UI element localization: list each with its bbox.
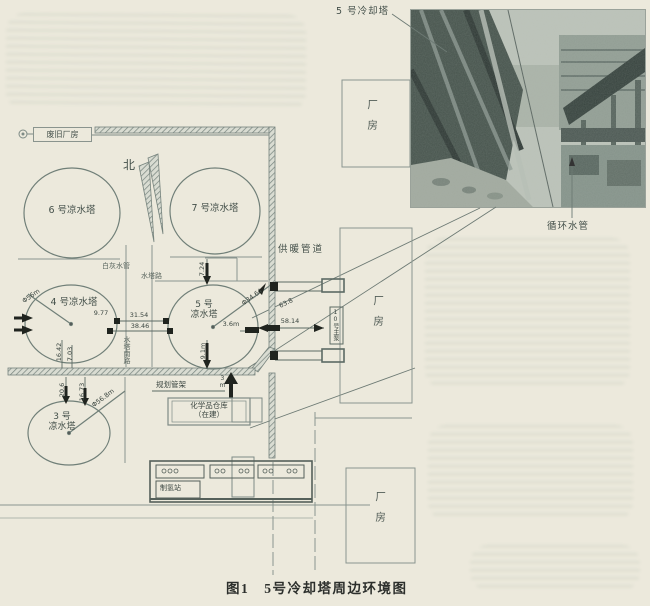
figure-page: 5 号冷却塔 循环水管 废旧厂房 北 6 号凉水塔 7 号凉水塔 4 号凉水塔 … xyxy=(0,0,650,606)
dim-7-24: 7.24 xyxy=(198,262,206,276)
tower-4-label: 4 号凉水塔 xyxy=(43,298,105,309)
dim-7-03: 7.03 xyxy=(66,347,74,361)
dim-58-14: 58.14 xyxy=(281,317,300,325)
tower-6-label: 6 号凉水塔 xyxy=(40,206,104,217)
pipe-node xyxy=(270,282,278,291)
factory-1-label: 厂房 xyxy=(366,99,378,159)
dim-20-6: 20.6 xyxy=(58,383,66,397)
chem-warehouse-label: 化学品仓库 （在建） xyxy=(170,402,248,419)
circ-pipe-arrowhead xyxy=(569,157,575,166)
shuita-road-label: 水塔路 xyxy=(141,272,162,280)
lime-pipe-label: 白灰水管 xyxy=(102,262,130,270)
tower-5-label-line1: 5 号 xyxy=(175,300,233,310)
supply-pipe-label: 供暖管道 xyxy=(278,245,324,256)
dim-31-54: 31.54 xyxy=(130,311,149,319)
circulating-pipe-label: 循环水管 xyxy=(547,222,589,233)
hydrogen-compound xyxy=(150,461,312,502)
dim-3-6m: 3.6m xyxy=(223,320,240,328)
tower-3-label-line1: 3 号 xyxy=(32,412,92,422)
dim-16-42: 16.42 xyxy=(55,343,63,362)
tower-3-label: 3 号 凉水塔 xyxy=(32,412,92,433)
dim-9-1m: 9.1m xyxy=(199,343,207,360)
factory-2-label: 厂房 xyxy=(372,295,384,355)
tower-5-label: 5 号 凉水塔 xyxy=(175,300,233,321)
dim-38-46: 38.46 xyxy=(131,322,150,330)
chem-warehouse-line2: （在建） xyxy=(170,411,248,420)
equipment-circles xyxy=(162,469,297,473)
old-factory-label: 废旧厂房 xyxy=(33,127,92,142)
annex-box xyxy=(232,457,254,497)
hydrogen-station-label: 制氢站 xyxy=(160,484,181,492)
north-arrow-icon xyxy=(139,154,163,242)
pipe-rack-width-label: 3m xyxy=(218,375,225,390)
shuita-south-road-label: 水塔南路 xyxy=(123,336,131,376)
figure-caption: 图1 5号冷却塔周边环境图 xyxy=(226,577,408,597)
factory-3-label: 厂房 xyxy=(374,491,386,551)
dim-16-73: 16.73 xyxy=(78,383,86,402)
pipe-rack-label: 规划管架 xyxy=(156,381,186,390)
north-label: 北 xyxy=(123,159,135,173)
tower-3-label-line2: 凉水塔 xyxy=(32,422,92,432)
pump-house-label: 10号主泵 xyxy=(331,309,338,343)
photo-tower-label: 5 号冷却塔 xyxy=(336,7,389,18)
tower-7-label: 7 号凉水塔 xyxy=(183,204,247,215)
dim-9-77: 9.77 xyxy=(94,309,108,317)
photo-label-leader xyxy=(392,14,447,52)
pipe-node xyxy=(270,351,278,360)
